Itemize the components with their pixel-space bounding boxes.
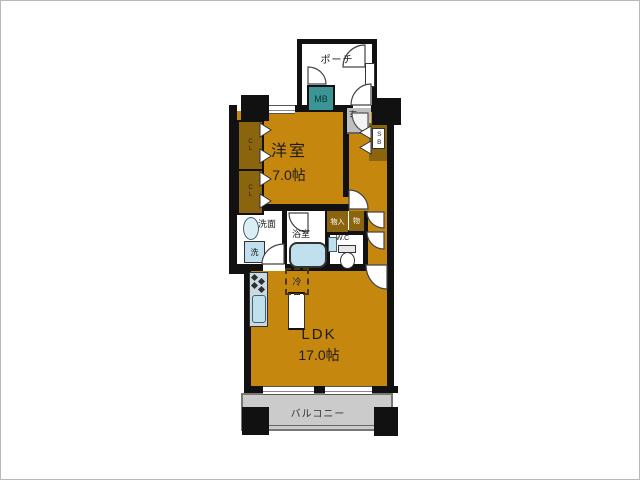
washing-machine-label: 洗 (251, 247, 259, 258)
storage-in-label: 物入 (331, 217, 345, 227)
toilet-bowl (340, 252, 355, 269)
washroom-label: 洗面 (258, 217, 276, 230)
refrigerator-space: 冷 (285, 268, 309, 295)
ldk-window-left (263, 386, 314, 395)
ldk-door-arc (366, 265, 387, 289)
kitchen-sink (252, 295, 266, 323)
pillar-bottom-right (374, 407, 398, 436)
entrance-door-arc (351, 84, 371, 105)
storage-small-box: 物 (349, 211, 364, 231)
closet-door-triangle (260, 123, 271, 137)
bedroom-label-group: 洋室 7.0帖 (251, 137, 327, 185)
pillar-top-left (241, 95, 269, 121)
bathtub (289, 242, 327, 268)
porch-label: ポーチ (304, 51, 370, 65)
kitchen-island-counter (288, 292, 305, 330)
storage-small-label: 物 (353, 216, 360, 226)
floor-plan: ポーチ MB 玄 SB CL CL 洋室 7.0帖 (0, 0, 640, 480)
meter-box-door-arc (308, 67, 326, 84)
ldk-size: 17.0帖 (284, 345, 354, 365)
wall-left-upper (229, 105, 237, 273)
closet-lower-label: CL (248, 185, 254, 199)
meter-box: MB (307, 85, 335, 112)
storage-door-arc (367, 212, 384, 228)
washroom-doorway (263, 264, 285, 271)
wall-wet-bottom-left (237, 264, 263, 271)
washbasin (243, 217, 259, 240)
pillar-top-right (372, 98, 401, 125)
bedroom-size: 7.0帖 (251, 165, 327, 185)
bedroom-door-arc (349, 190, 368, 209)
shoe-box: SB (372, 128, 385, 149)
meter-box-label: MB (314, 94, 328, 104)
washroom-door-arc (262, 244, 284, 264)
ldk-label-group: LDK 17.0帖 (284, 326, 354, 365)
ldk-window-right (325, 386, 372, 395)
shoe-box-door-triangle (360, 126, 371, 139)
refrigerator-label: 冷 (292, 275, 301, 288)
balcony-label: バルコニー (263, 405, 373, 419)
storage-in-box: 物入 (327, 211, 348, 232)
bedroom-name: 洋室 (251, 137, 327, 161)
shoe-box-label: SB (375, 131, 382, 147)
wc-door-arc (367, 232, 384, 249)
closet-door-triangle (260, 194, 271, 208)
wall-right (387, 121, 394, 393)
shoe-box-door-triangle (360, 141, 371, 154)
toilet-label: W.C (336, 235, 349, 242)
bathroom-label: 浴室 (292, 227, 310, 240)
ldk-name: LDK (284, 326, 354, 343)
